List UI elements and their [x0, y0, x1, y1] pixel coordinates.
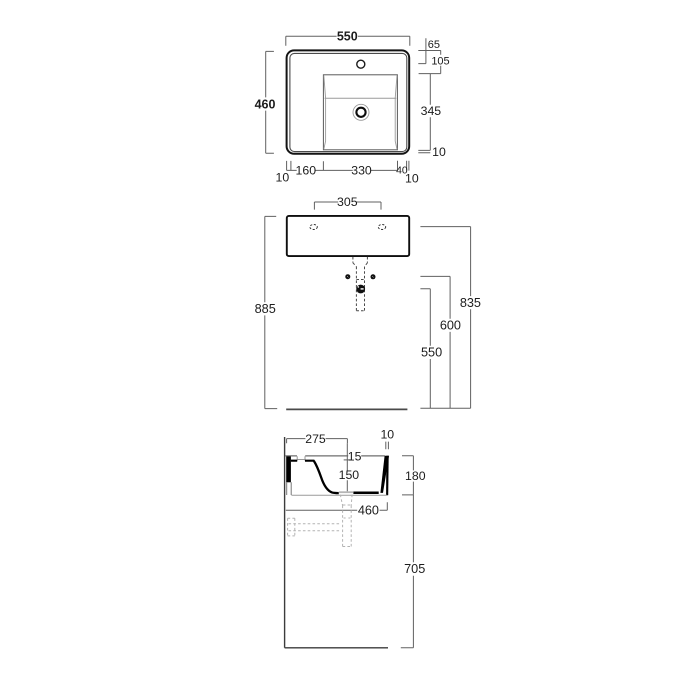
svg-text:160: 160 [296, 164, 317, 178]
svg-text:105: 105 [431, 55, 449, 67]
svg-text:345: 345 [421, 104, 442, 118]
svg-text:460: 460 [358, 504, 379, 518]
svg-text:65: 65 [428, 39, 440, 51]
svg-text:10: 10 [405, 172, 419, 186]
svg-text:705: 705 [404, 562, 425, 576]
svg-text:835: 835 [460, 296, 481, 310]
svg-text:460: 460 [255, 98, 276, 112]
svg-text:550: 550 [421, 346, 442, 360]
svg-text:885: 885 [255, 302, 276, 316]
svg-text:330: 330 [351, 164, 372, 178]
svg-text:600: 600 [440, 319, 461, 333]
svg-text:10: 10 [380, 428, 394, 442]
svg-text:150: 150 [339, 468, 360, 482]
svg-text:10: 10 [432, 145, 446, 159]
svg-text:180: 180 [405, 469, 426, 483]
svg-text:275: 275 [305, 432, 326, 446]
svg-text:305: 305 [337, 195, 358, 209]
svg-text:15: 15 [348, 450, 362, 464]
svg-text:10: 10 [276, 170, 290, 184]
svg-text:550: 550 [337, 30, 358, 44]
